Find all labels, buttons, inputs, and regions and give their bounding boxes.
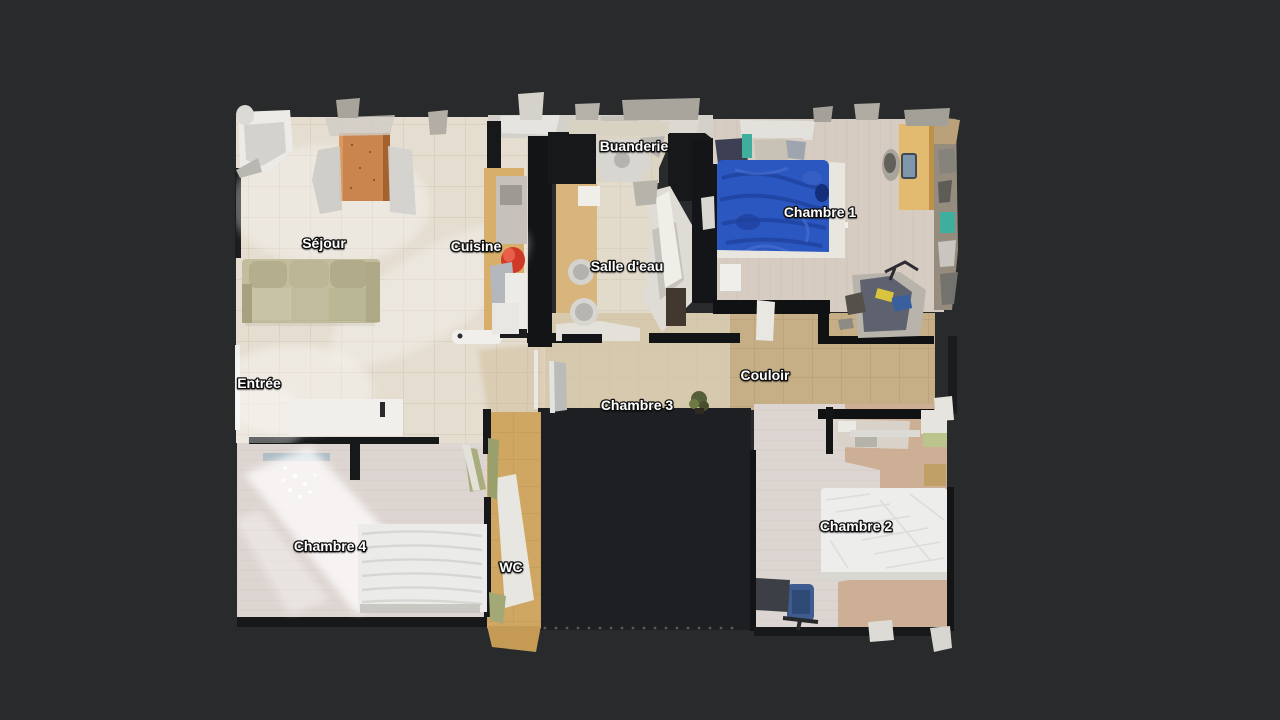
svg-text:Cuisine: Cuisine [451, 238, 502, 254]
svg-text:WC: WC [499, 559, 522, 575]
svg-text:Salle d'eau: Salle d'eau [591, 258, 664, 274]
svg-text:Chambre 2: Chambre 2 [820, 518, 893, 534]
svg-text:Buanderie: Buanderie [600, 138, 669, 154]
svg-text:Couloir: Couloir [741, 367, 791, 383]
svg-text:Chambre 1: Chambre 1 [784, 204, 857, 220]
svg-text:Séjour: Séjour [302, 235, 346, 251]
svg-text:Entrée: Entrée [237, 375, 281, 391]
svg-text:Chambre 4: Chambre 4 [294, 538, 367, 554]
svg-text:Chambre 3: Chambre 3 [601, 397, 674, 413]
